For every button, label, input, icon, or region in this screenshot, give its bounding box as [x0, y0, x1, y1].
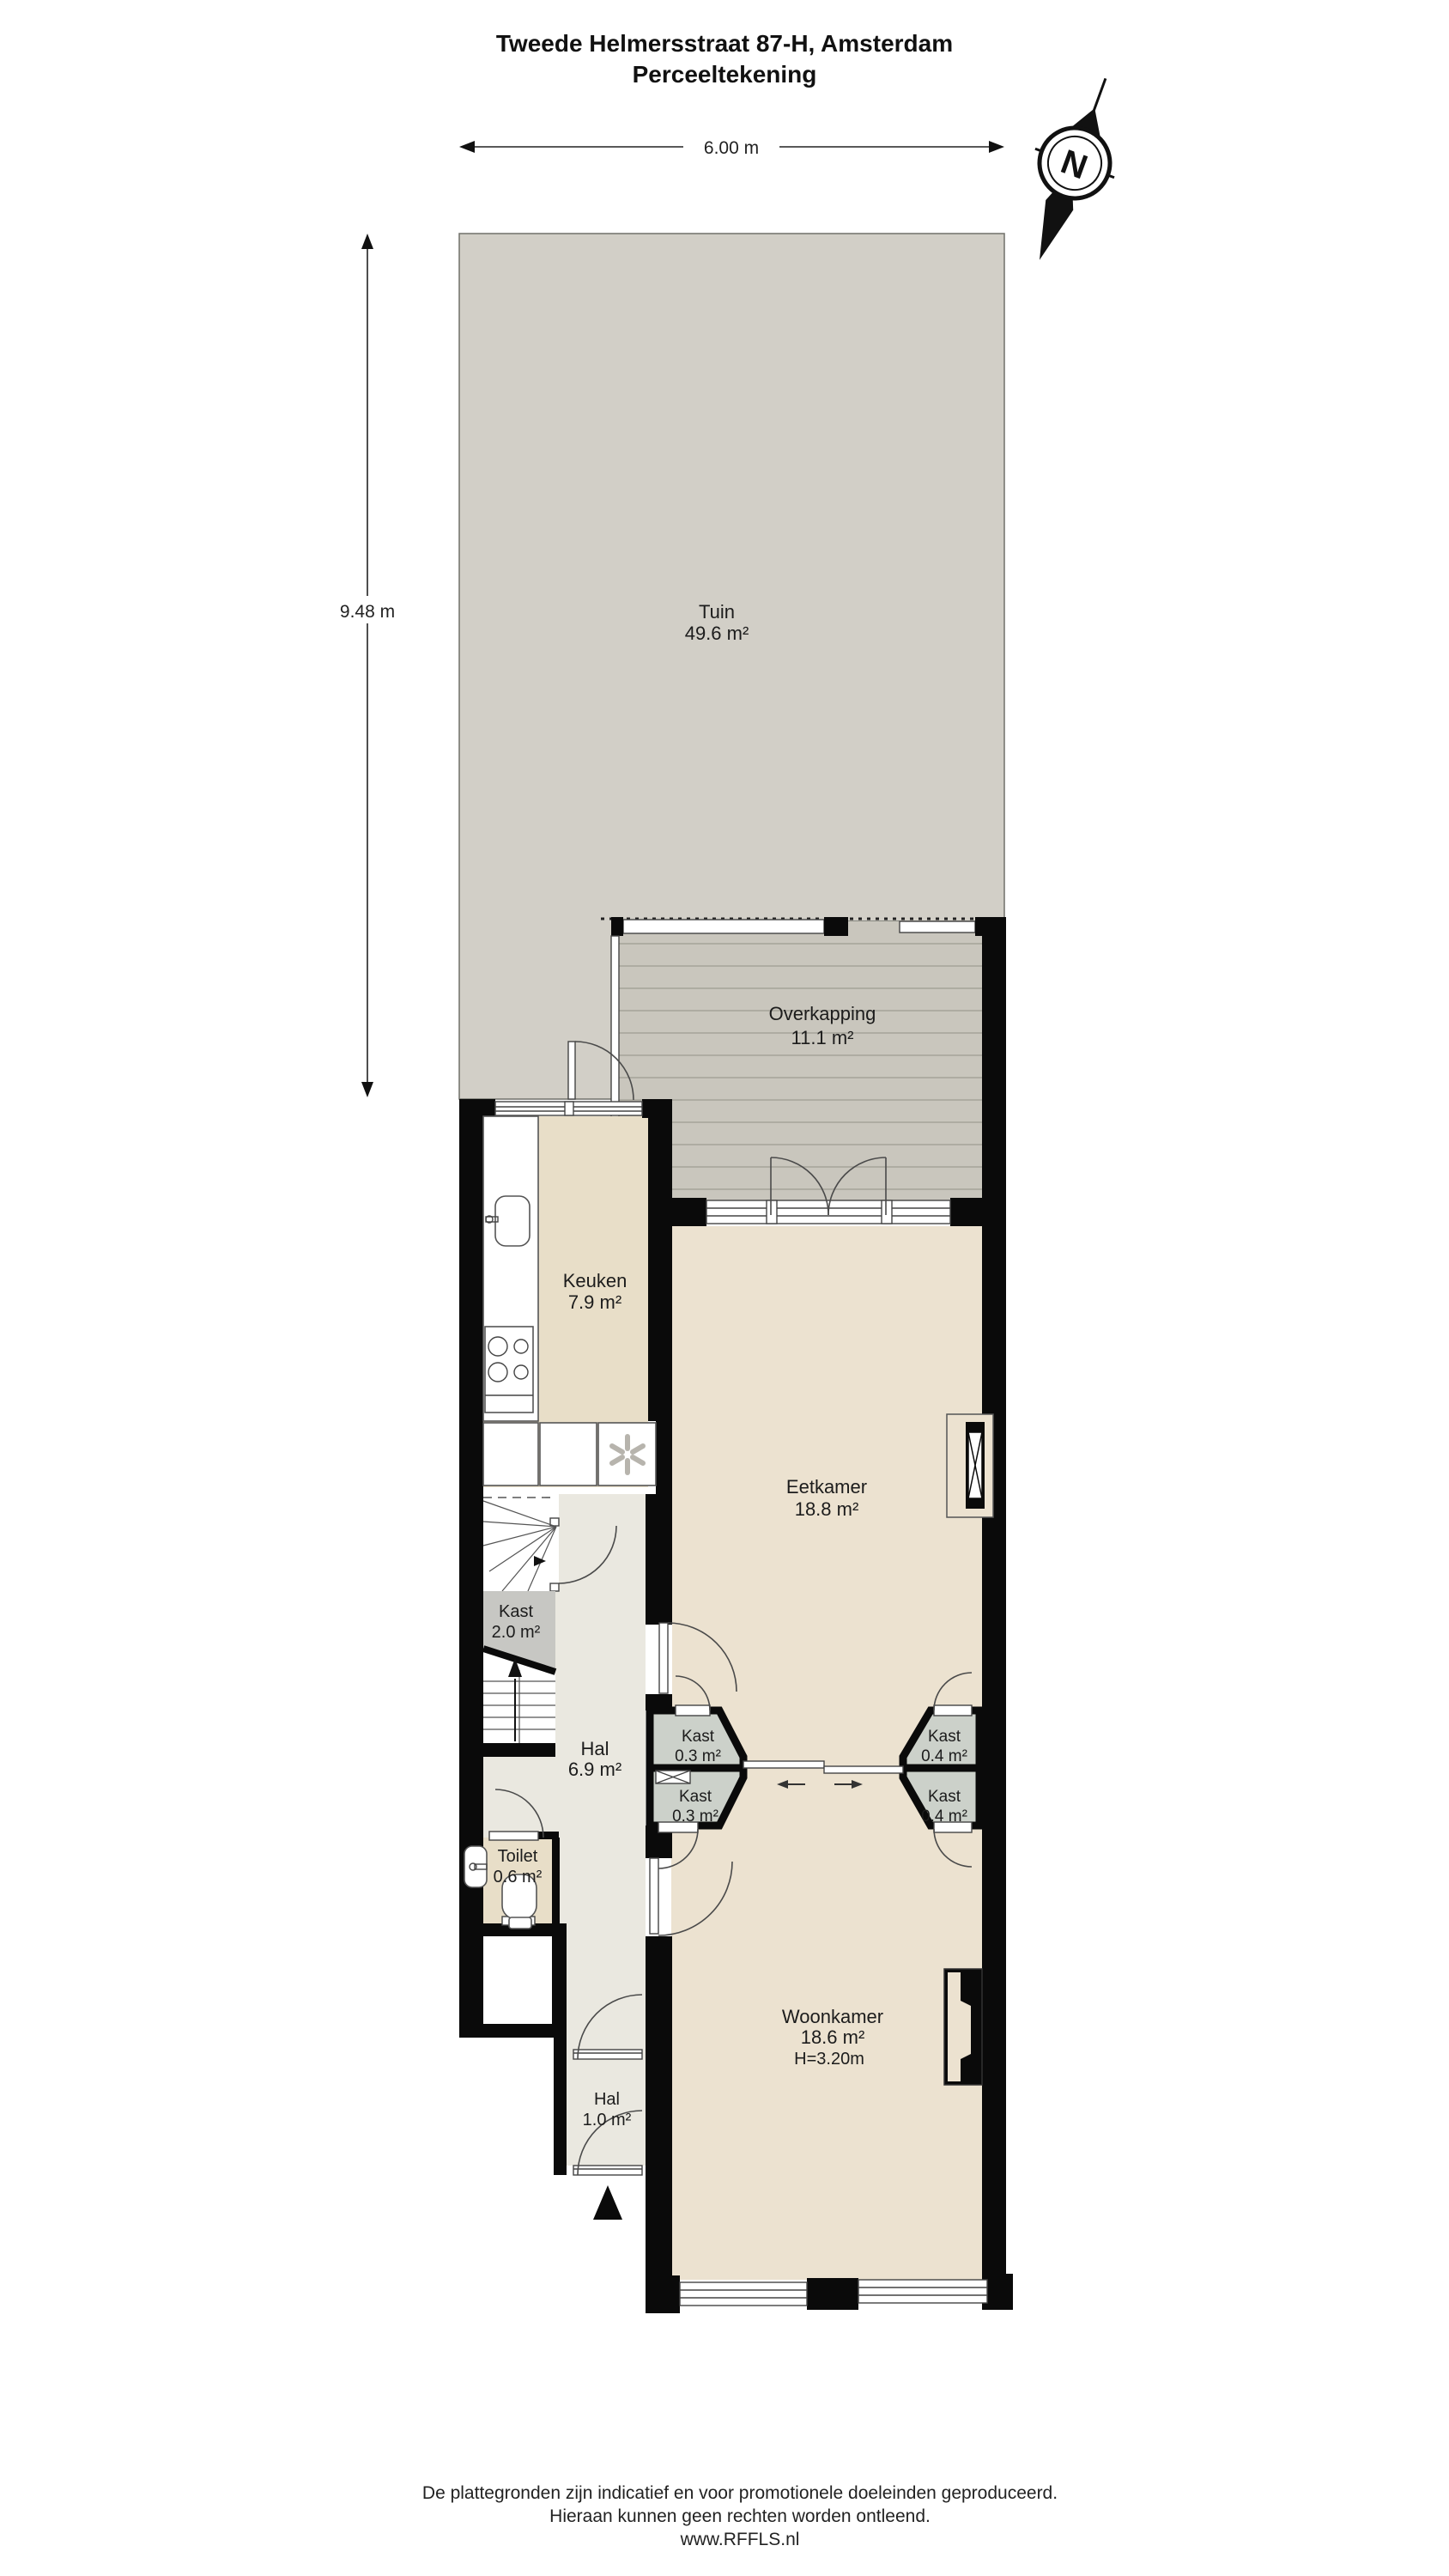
footer-line2: Hieraan kunnen geen rechten worden ontle… [549, 2506, 931, 2526]
eetkamer-chimney [947, 1414, 993, 1517]
footer-line3: www.RFFLS.nl [680, 2530, 800, 2549]
arrowhead-right [989, 141, 1004, 153]
kitchen-cabinet-3 [598, 1423, 656, 1485]
duct-box-icon [656, 1771, 690, 1783]
hal-woonkamer-door-leaf [650, 1858, 658, 1934]
compass-rose: N [1000, 64, 1145, 275]
label-keuken-area: 7.9 m² [568, 1291, 621, 1313]
label-kast-rt-area: 0.4 m² [921, 1747, 967, 1765]
label-toilet-name: Toilet [498, 1847, 538, 1866]
footer-line1: De plattegronden zijn indicatief en voor… [422, 2483, 1058, 2503]
title-line2: Perceeltekening [633, 61, 817, 88]
dimension-width: 6.00 m [459, 134, 1004, 160]
dimension-width-label: 6.00 m [704, 138, 759, 158]
hal-eetkamer-door-leaf [659, 1623, 668, 1693]
label-eetkamer-name: Eetkamer [786, 1476, 867, 1498]
label-woonkamer-height: H=3.20m [794, 2050, 864, 2069]
label-overkapping-area: 11.1 m² [791, 1027, 854, 1048]
dimension-depth: 9.48 m [329, 234, 406, 1097]
entrance-arrow [593, 2185, 622, 2220]
label-overkapping-name: Overkapping [769, 1003, 876, 1024]
label-kast-rb-area: 0.4 m² [921, 1807, 967, 1826]
page-title: Tweede Helmersstraat 87-H, Amsterdam Per… [496, 30, 953, 88]
stove-icon [485, 1327, 533, 1413]
label-kast-lt-name: Kast [682, 1728, 715, 1746]
label-woonkamer-area: 18.6 m² [801, 2026, 865, 2048]
room-hal-floor-4 [567, 1936, 646, 2059]
front-door-sill [573, 2166, 642, 2175]
label-woonkamer-name: Woonkamer [782, 2006, 883, 2027]
label-kast-lb-area: 0.3 m² [672, 1807, 718, 1826]
floorplan-page: Tweede Helmersstraat 87-H, Amsterdam Per… [0, 0, 1449, 2576]
woonkamer-window-left [680, 2282, 807, 2306]
storage-room [479, 1936, 552, 2024]
label-kast-rt-name: Kast [928, 1728, 961, 1746]
label-hal-entree-name: Hal [594, 2090, 620, 2109]
arrowhead-top [361, 234, 373, 249]
footer-disclaimer: De plattegronden zijn indicatief en voor… [422, 2483, 1058, 2549]
label-hal-entree-area: 1.0 m² [583, 2111, 632, 2129]
room-hal-floor-1 [555, 1494, 646, 1752]
kitchen-cabinet-2 [540, 1423, 597, 1485]
room-hal-floor-3 [559, 1832, 646, 1945]
label-eetkamer-area: 18.8 m² [795, 1498, 859, 1520]
label-hal-name: Hal [580, 1738, 609, 1759]
dimension-depth-label: 9.48 m [340, 602, 395, 622]
washbasin-icon [464, 1846, 487, 1887]
label-kast-rb-name: Kast [928, 1788, 961, 1806]
keuken-garden-door-leaf [568, 1042, 575, 1099]
label-kast-trap-area: 2.0 m² [492, 1623, 541, 1642]
arrowhead-left [459, 141, 475, 153]
sink-icon [495, 1196, 530, 1246]
toilet-door-sill [489, 1832, 538, 1840]
hal-tussendeur-sill [573, 2050, 642, 2059]
title-line1: Tweede Helmersstraat 87-H, Amsterdam [496, 30, 953, 57]
deck-beam-right [900, 921, 975, 933]
label-kast-lt-area: 0.3 m² [675, 1747, 721, 1765]
arrowhead-bottom [361, 1082, 373, 1097]
woonkamer-window-right [858, 2280, 987, 2303]
label-kast-lb-name: Kast [679, 1788, 712, 1806]
label-kast-trap-name: Kast [499, 1602, 533, 1621]
kitchen-cabinet-1 [483, 1423, 538, 1485]
woonkamer-chimney [944, 1969, 982, 2085]
label-toilet-area: 0.6 m² [494, 1868, 543, 1886]
label-hal-area: 6.9 m² [568, 1759, 621, 1780]
label-tuin-name: Tuin [699, 601, 735, 623]
floorplan-drawing: Tweede Helmersstraat 87-H, Amsterdam Per… [0, 0, 1449, 2576]
label-tuin-area: 49.6 m² [685, 623, 749, 644]
deck-beam-left [623, 920, 824, 933]
label-keuken-name: Keuken [563, 1270, 627, 1291]
